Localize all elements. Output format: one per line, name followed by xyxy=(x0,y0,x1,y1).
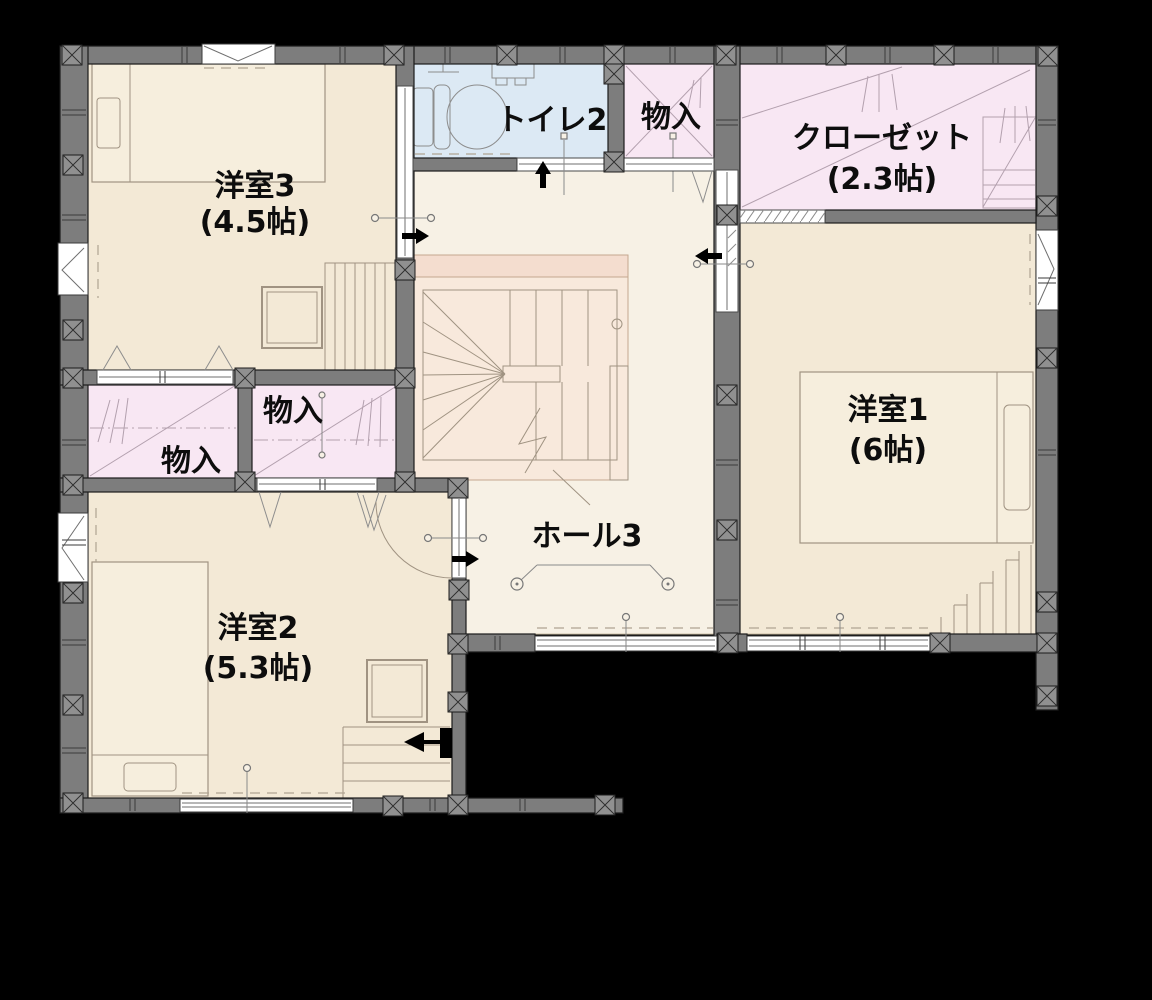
label-monoire-top: 物入 xyxy=(641,100,701,135)
label-yoshitsu2: 洋室2 xyxy=(218,611,299,646)
bed-yoshitsu3 xyxy=(92,64,325,182)
wall-toilet-bottom xyxy=(412,158,517,171)
label-yoshitsu3: 洋室3 xyxy=(215,169,296,204)
window-top-yoshitsu3 xyxy=(202,44,275,68)
staircase xyxy=(410,255,628,505)
floor-plan-page: 洋室3 (4.5帖) トイレ2 物入 クローゼット (2.3帖) 洋室1 (6帖… xyxy=(0,0,1152,1000)
wall-center-vertical xyxy=(714,46,740,652)
label-yoshitsu2-size: (5.3帖) xyxy=(203,651,314,686)
label-monoire-right: 物入 xyxy=(263,394,323,429)
wall-monoire-mid xyxy=(238,383,252,478)
label-closet-size: (2.3帖) xyxy=(827,162,938,197)
label-toilet2: トイレ2 xyxy=(497,103,608,138)
label-hall3: ホール3 xyxy=(532,519,643,554)
label-monoire-left: 物入 xyxy=(161,444,221,479)
floor-plan-drawing: 洋室3 (4.5帖) トイレ2 物入 クローゼット (2.3帖) 洋室1 (6帖… xyxy=(0,0,1152,1000)
label-closet: クローゼット xyxy=(792,121,972,156)
label-yoshitsu1: 洋室1 xyxy=(848,393,929,428)
bed-yoshitsu2 xyxy=(92,562,208,796)
label-yoshitsu3-size: (4.5帖) xyxy=(200,205,311,240)
label-yoshitsu1-size: (6帖) xyxy=(849,433,927,468)
wall-closet-bottom xyxy=(825,210,1036,223)
